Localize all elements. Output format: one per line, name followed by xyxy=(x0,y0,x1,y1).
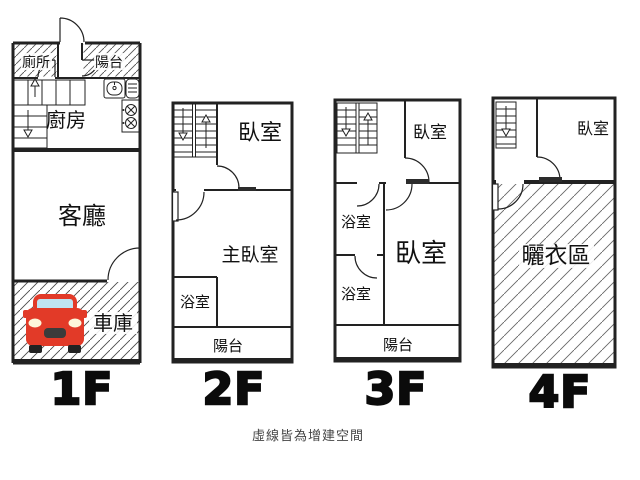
room-label-drying-area: 曬衣區 xyxy=(522,243,591,269)
floor-plan-3f: 臥室 浴室 臥室 浴室 陽台 3F xyxy=(335,100,460,415)
kitchen-sink-icon xyxy=(104,79,139,98)
floor-plan-1f: 廁所 陽台 廚房 客廳 車庫 1F xyxy=(13,18,140,415)
stairs-4f xyxy=(496,102,516,148)
floor-label-4f: 4F xyxy=(529,367,592,418)
room-label-balcony-2f: 陽台 xyxy=(213,337,243,355)
room-label-bath-lower: 浴室 xyxy=(341,285,371,303)
car-headlight-left xyxy=(29,319,42,328)
room-label-bath-2f: 浴室 xyxy=(180,293,210,311)
room-label-kitchen: 廚房 xyxy=(46,108,86,132)
room-label-bedroom-main: 臥室 xyxy=(395,239,447,269)
floor-label-1f: 1F xyxy=(51,364,114,415)
stove-icon xyxy=(122,100,140,132)
room-label-master: 主臥室 xyxy=(221,244,278,266)
car-wheel-left xyxy=(29,345,42,353)
stairs-down-arrow-icon xyxy=(24,130,32,137)
room-label-bath-upper: 浴室 xyxy=(341,213,371,231)
door-sill xyxy=(238,187,256,191)
floor-plan-4f: 臥室 曬衣區 4F xyxy=(493,98,616,418)
room-label-balcony-3f: 陽台 xyxy=(383,336,413,354)
stairs-down-arrow-icon xyxy=(179,133,187,140)
room-label-balcony-1f: 陽台 xyxy=(95,55,123,71)
stairs-down-arrow-icon xyxy=(502,129,510,136)
caption-note: 虛線皆為增建空間 xyxy=(252,428,364,444)
room-label-garage: 車庫 xyxy=(93,311,133,335)
floor-label-3f: 3F xyxy=(365,364,428,415)
door-swing-icon xyxy=(173,166,257,221)
stairs-up-arrow-icon xyxy=(202,115,210,122)
stairs-2f xyxy=(173,103,217,157)
car-wheel-right xyxy=(68,345,81,353)
room-label-toilet: 廁所 xyxy=(22,54,50,71)
stairs-3f xyxy=(337,103,377,153)
hatch-drying-area xyxy=(495,184,614,365)
car-headlight-right xyxy=(69,319,82,328)
door-leaf xyxy=(493,184,499,210)
floorplan-canvas: 廁所 陽台 廚房 客廳 車庫 1F 臥室 xyxy=(0,0,640,480)
room-label-bedroom-front: 臥室 xyxy=(413,123,447,143)
door-sill xyxy=(406,179,429,184)
door-sill xyxy=(539,177,562,182)
room-label-bedroom-4f: 臥室 xyxy=(577,119,609,138)
car-grille xyxy=(44,328,66,338)
floorplan-image: 廁所 陽台 廚房 客廳 車庫 1F 臥室 xyxy=(0,0,640,480)
door-leaf xyxy=(173,192,179,221)
stairs-down-arrow-icon xyxy=(342,129,350,136)
floor-label-2f: 2F xyxy=(203,364,266,415)
floor-plan-2f: 臥室 主臥室 浴室 陽台 2F xyxy=(173,103,293,415)
room-label-living: 客廳 xyxy=(58,202,106,230)
room-label-bedroom-2f: 臥室 xyxy=(238,121,282,146)
